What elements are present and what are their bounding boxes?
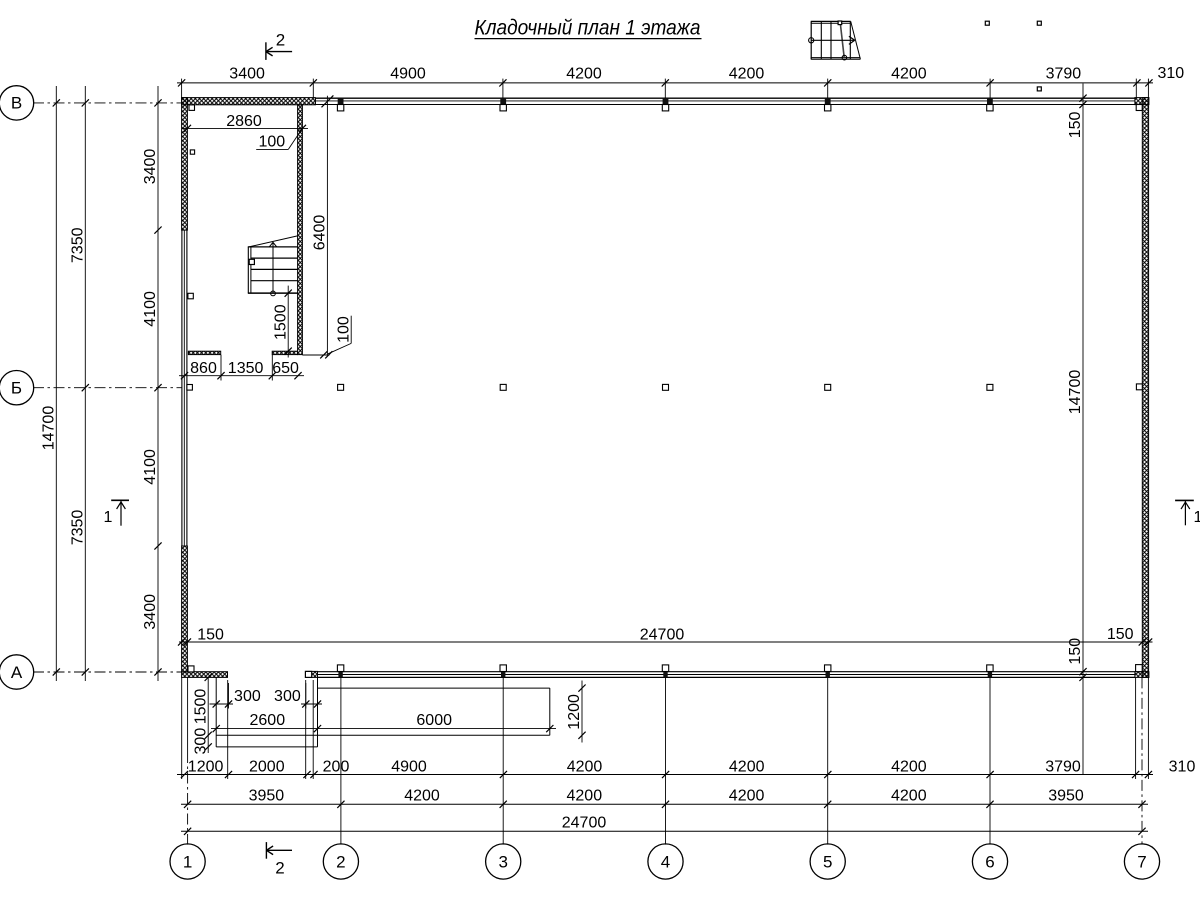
svg-text:14700: 14700 <box>1067 370 1084 415</box>
svg-text:7: 7 <box>1137 853 1146 872</box>
svg-text:3: 3 <box>498 853 507 872</box>
svg-text:4200: 4200 <box>891 787 927 804</box>
svg-text:2: 2 <box>276 31 285 50</box>
svg-text:2860: 2860 <box>226 113 262 130</box>
svg-text:24700: 24700 <box>640 626 685 643</box>
svg-text:1: 1 <box>1194 509 1200 526</box>
svg-text:1200: 1200 <box>566 694 583 730</box>
svg-text:150: 150 <box>197 627 224 644</box>
svg-text:4900: 4900 <box>391 758 427 775</box>
svg-text:310: 310 <box>1157 65 1184 82</box>
svg-text:650: 650 <box>272 360 299 377</box>
svg-text:5: 5 <box>823 853 832 872</box>
svg-text:150: 150 <box>1067 638 1084 665</box>
svg-text:100: 100 <box>335 316 352 343</box>
svg-text:4100: 4100 <box>142 291 159 327</box>
svg-text:4900: 4900 <box>390 65 426 82</box>
svg-text:860: 860 <box>190 360 217 377</box>
svg-text:6: 6 <box>985 853 994 872</box>
svg-text:4200: 4200 <box>729 758 765 775</box>
svg-text:2600: 2600 <box>250 712 286 729</box>
svg-text:4200: 4200 <box>567 787 603 804</box>
svg-text:7350: 7350 <box>69 227 86 263</box>
svg-text:6400: 6400 <box>312 215 329 251</box>
svg-text:300: 300 <box>192 728 209 755</box>
svg-text:4200: 4200 <box>891 65 927 82</box>
svg-text:150: 150 <box>1107 626 1134 643</box>
svg-text:В: В <box>11 94 22 113</box>
svg-text:7350: 7350 <box>69 510 86 546</box>
svg-text:300: 300 <box>274 688 301 705</box>
svg-text:3400: 3400 <box>142 149 159 185</box>
svg-text:3400: 3400 <box>142 594 159 630</box>
svg-text:200: 200 <box>323 758 350 775</box>
svg-text:150: 150 <box>1067 111 1084 138</box>
svg-text:100: 100 <box>258 133 285 150</box>
svg-text:6000: 6000 <box>416 712 452 729</box>
svg-text:3790: 3790 <box>1046 65 1082 82</box>
svg-text:1350: 1350 <box>228 360 264 377</box>
svg-text:1500: 1500 <box>192 689 209 725</box>
svg-text:Б: Б <box>11 379 22 398</box>
svg-text:Кладочный план 1 этажа: Кладочный план 1 этажа <box>475 17 701 40</box>
svg-text:2: 2 <box>275 859 284 878</box>
svg-text:4200: 4200 <box>729 787 765 804</box>
svg-text:1: 1 <box>183 853 192 872</box>
svg-text:4: 4 <box>661 853 670 872</box>
svg-text:3400: 3400 <box>229 65 265 82</box>
svg-text:4100: 4100 <box>142 449 159 485</box>
svg-text:300: 300 <box>234 688 261 705</box>
svg-text:4200: 4200 <box>566 65 602 82</box>
svg-text:4200: 4200 <box>567 758 603 775</box>
svg-text:А: А <box>11 663 23 682</box>
svg-text:4200: 4200 <box>404 787 440 804</box>
svg-text:310: 310 <box>1169 758 1196 775</box>
svg-text:2: 2 <box>336 853 345 872</box>
svg-text:1200: 1200 <box>188 758 224 775</box>
svg-text:3790: 3790 <box>1045 758 1081 775</box>
svg-text:1500: 1500 <box>272 304 289 340</box>
svg-text:2000: 2000 <box>249 758 285 775</box>
svg-text:14700: 14700 <box>40 406 57 451</box>
svg-text:3950: 3950 <box>1048 787 1084 804</box>
svg-text:4200: 4200 <box>729 65 765 82</box>
svg-text:1: 1 <box>104 509 113 526</box>
svg-text:3950: 3950 <box>249 787 285 804</box>
svg-text:24700: 24700 <box>562 815 607 832</box>
svg-text:4200: 4200 <box>891 758 927 775</box>
